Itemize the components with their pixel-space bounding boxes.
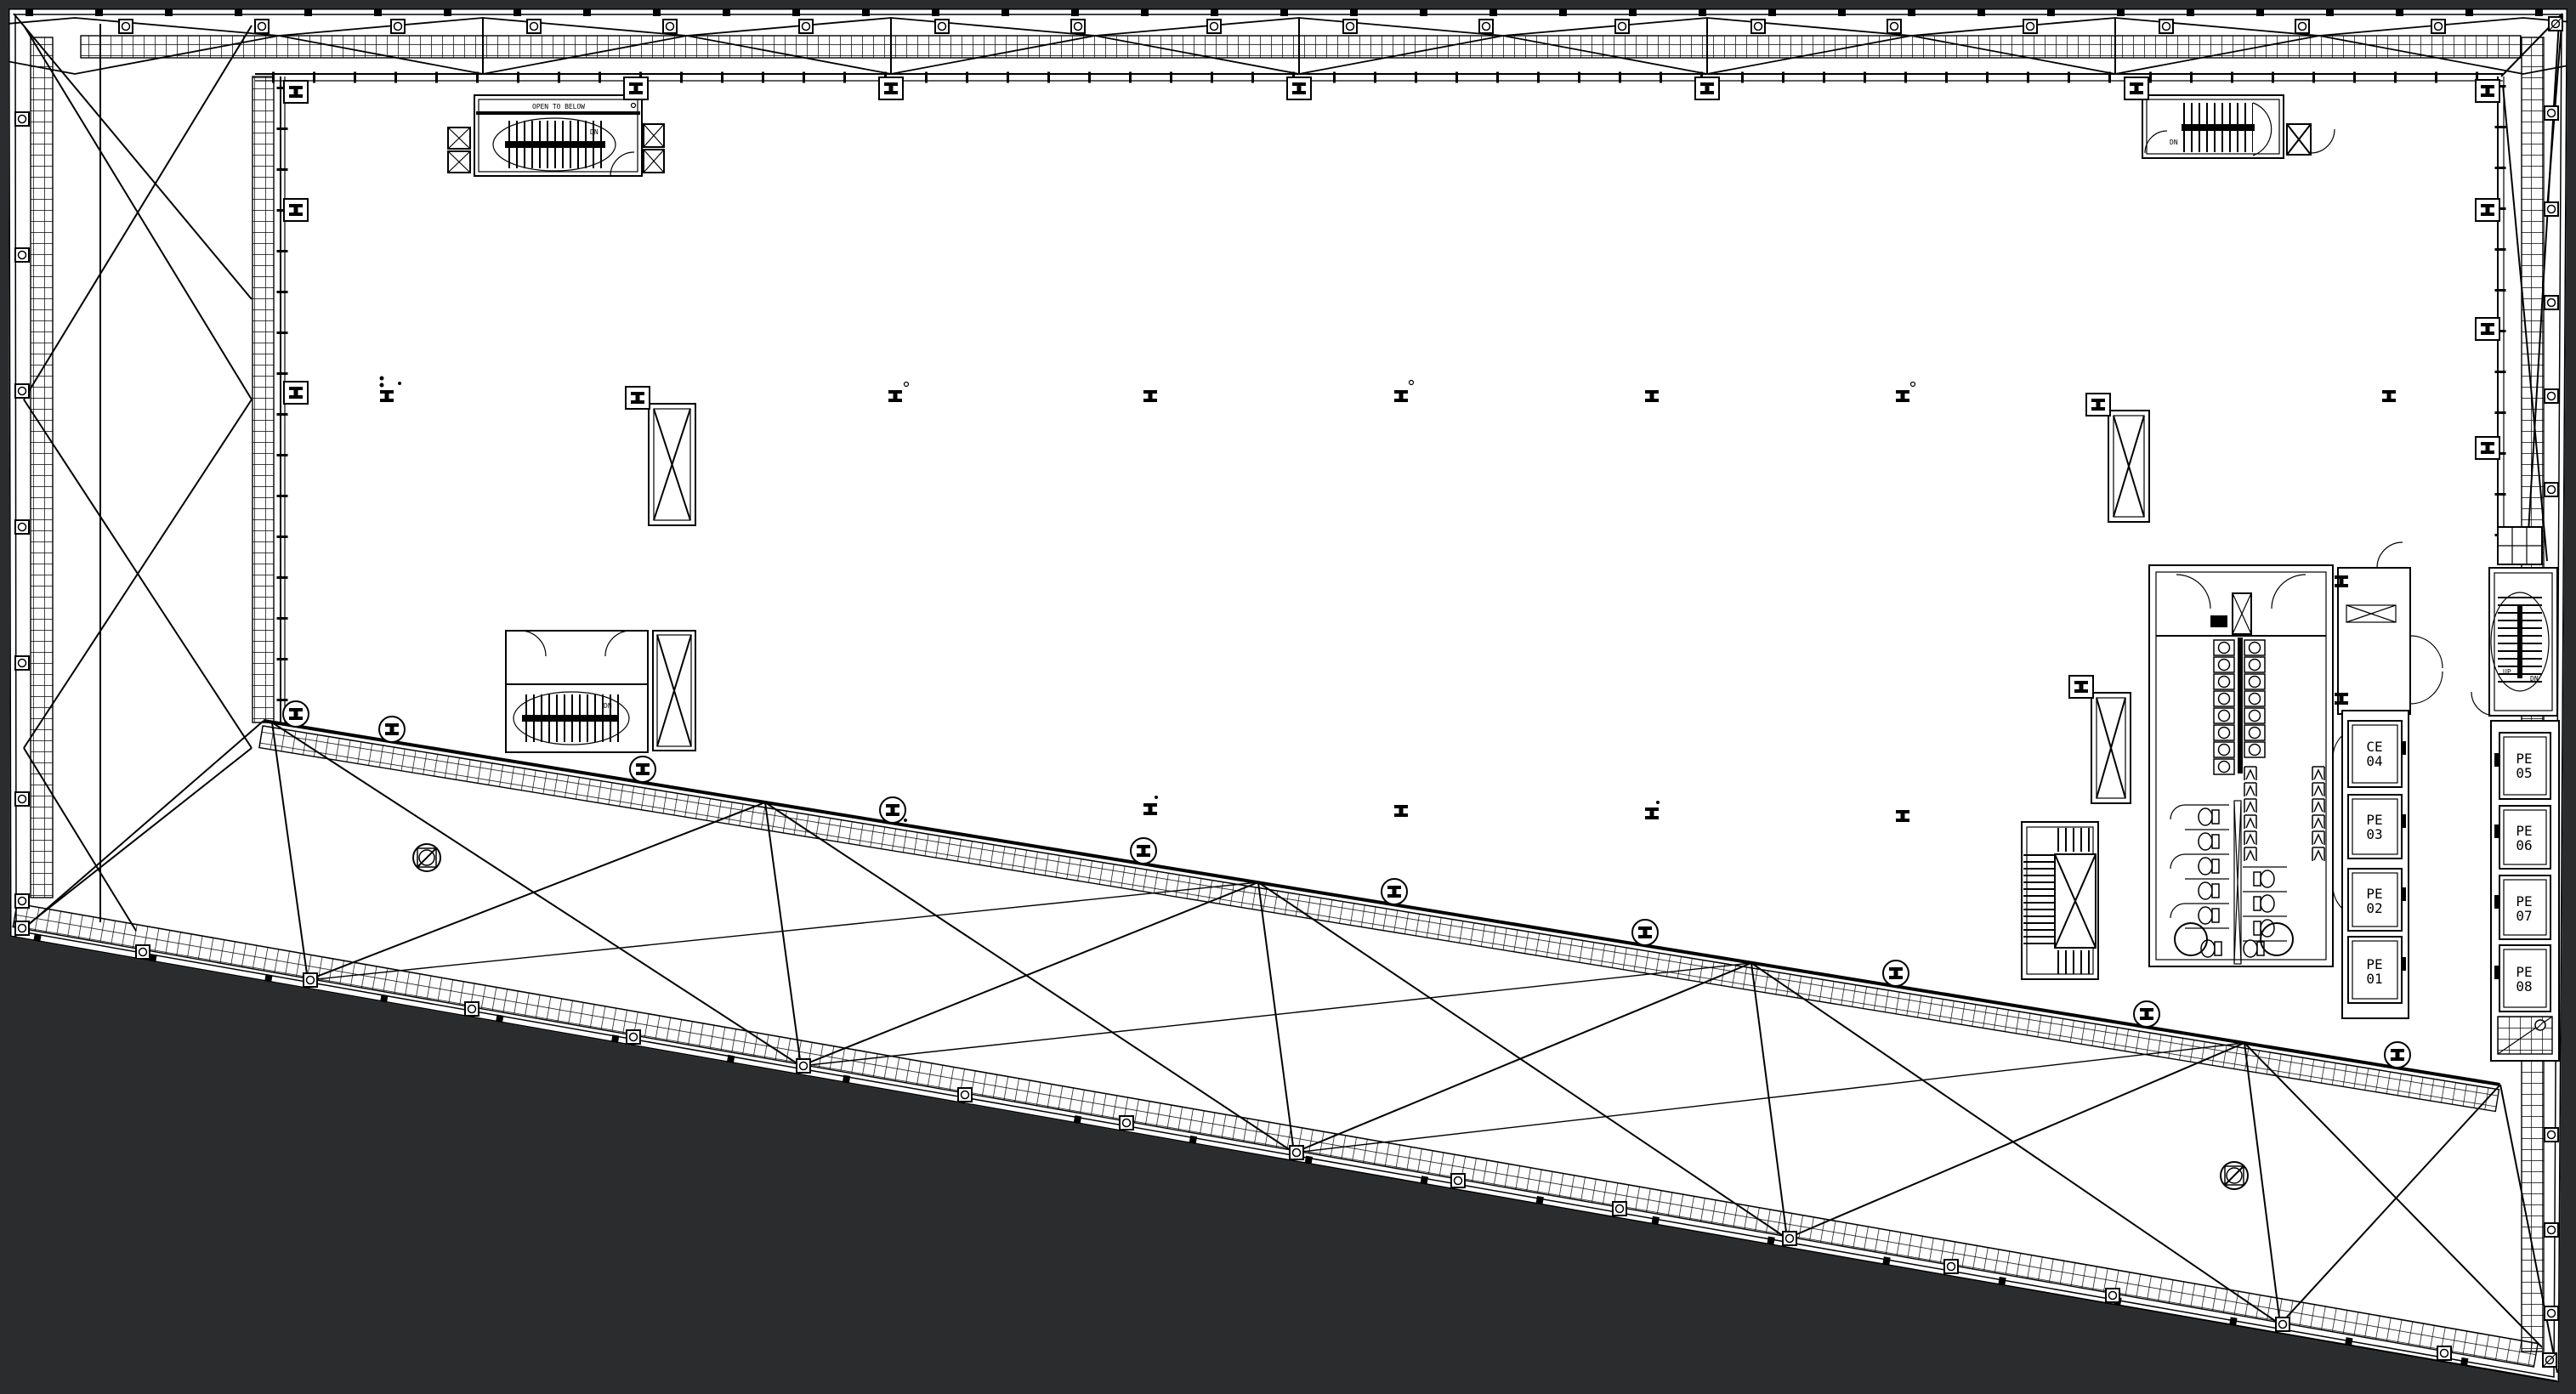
- svg-text:06: 06: [2516, 837, 2532, 853]
- elevator-PE-02: PE 02: [2348, 869, 2406, 931]
- cad-floor-plan-page: { "colors": { "background": "#2a2c2d", "…: [0, 0, 2576, 1394]
- svg-text:05: 05: [2516, 765, 2532, 781]
- svg-text:08: 08: [2516, 978, 2532, 994]
- elevator-CE-04: CE 04: [2348, 721, 2406, 787]
- stair-nw-dn-label: DN: [590, 128, 599, 136]
- corner-node-ne: [2549, 17, 2562, 31]
- elevator-bank-inner: CE 04 PE 03 PE 02 PE: [2342, 711, 2409, 1018]
- edge-bank-base-hatch: [2498, 1017, 2552, 1054]
- svg-text:07: 07: [2516, 908, 2532, 924]
- corner-node-se: [2543, 1353, 2556, 1367]
- restroom-core: [2149, 565, 2365, 966]
- stair-east-dn-label: DN: [2530, 675, 2539, 683]
- lavatories: [2214, 637, 2265, 774]
- hatch-band-west-inner-wall: [252, 76, 274, 722]
- shaft-west: [649, 404, 695, 525]
- hatch-band-north: [81, 36, 2521, 58]
- elevator-bank-edge: PE 05 PE 06 PE 07 PE: [2491, 721, 2559, 1061]
- svg-text:01: 01: [2366, 971, 2382, 987]
- shaft-east-lower: [2091, 693, 2131, 803]
- roof-drain-west: [413, 844, 440, 871]
- stair-east-up-label: UP: [2503, 668, 2511, 676]
- hatch-band-west: [31, 37, 53, 898]
- svg-text:04: 04: [2366, 753, 2382, 769]
- elevator-PE-08: PE 08: [2494, 945, 2550, 1011]
- stair-northwest: OPEN TO BELOW DN: [448, 95, 664, 176]
- svg-text:03: 03: [2366, 826, 2382, 842]
- roof-drain-east: [2221, 1162, 2248, 1189]
- elevator-PE-06: PE 06: [2494, 806, 2550, 869]
- stair-ne-dn-label: DN: [2170, 139, 2178, 146]
- svg-text:02: 02: [2366, 900, 2382, 916]
- floorplan-drawing: OPEN TO BELOW DN DN: [0, 0, 2576, 1394]
- elevator-PE-01: PE 01: [2348, 937, 2406, 1003]
- elevator-PE-03: PE 03: [2348, 795, 2406, 858]
- open-to-below-label: OPEN TO BELOW: [532, 103, 585, 110]
- stair-southwest: DN: [506, 631, 695, 765]
- shaft-east-upper: [2108, 411, 2149, 522]
- service-stair-block: [2022, 822, 2098, 979]
- elevator-PE-05: PE 05: [2494, 733, 2550, 799]
- stair-sw-dn-label: DN: [604, 702, 612, 710]
- elevator-PE-07: PE 07: [2494, 875, 2550, 939]
